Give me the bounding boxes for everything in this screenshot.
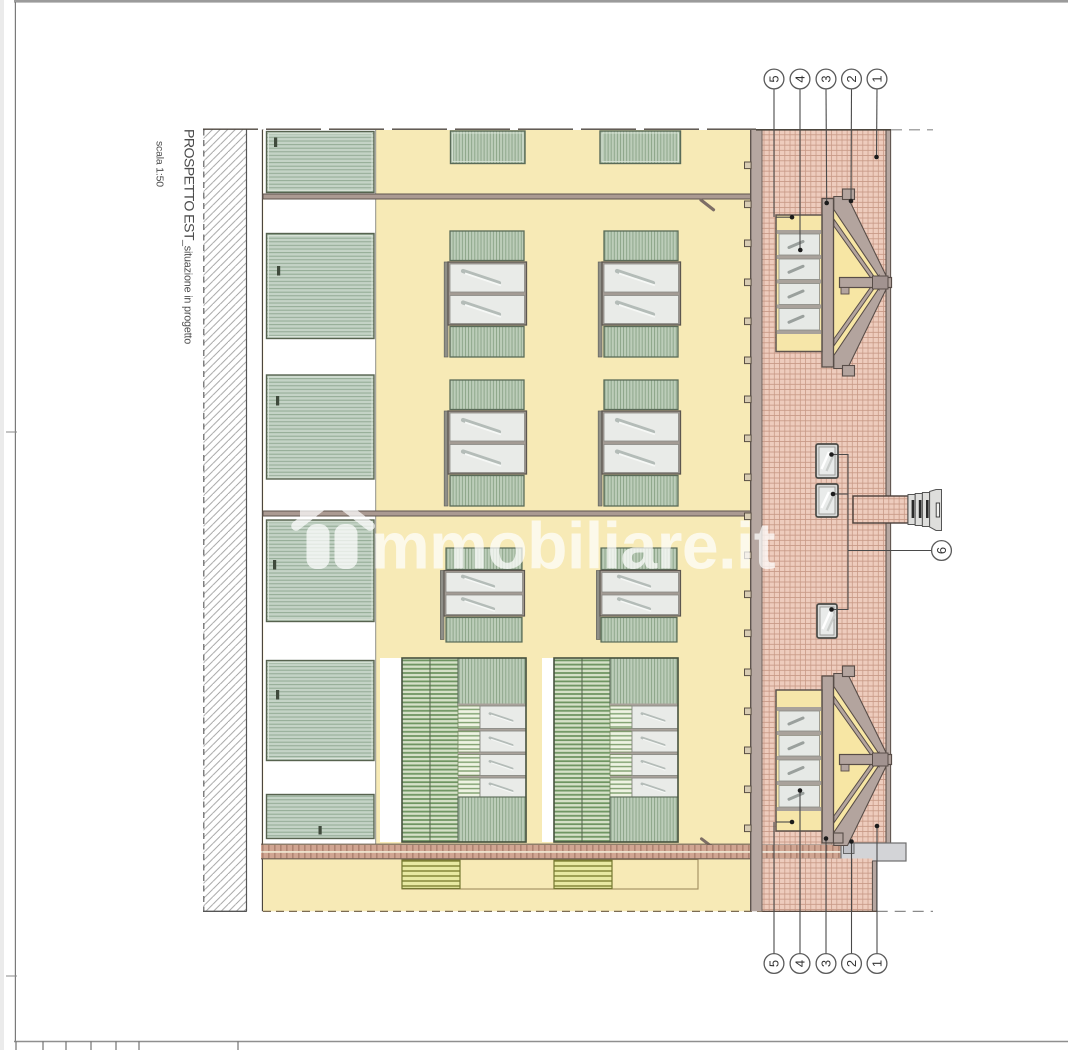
- svg-text:4: 4: [793, 75, 808, 82]
- svg-text:6: 6: [934, 547, 949, 554]
- svg-text:1: 1: [870, 75, 885, 82]
- svg-text:3: 3: [819, 75, 834, 82]
- svg-text:scala 1:50: scala 1:50: [154, 141, 166, 187]
- svg-text:1: 1: [870, 960, 885, 967]
- svg-text:2: 2: [844, 960, 859, 967]
- svg-text:5: 5: [767, 75, 782, 82]
- svg-text:mmobiliare.it: mmobiliare.it: [371, 509, 776, 583]
- svg-text:PROSPETTO EST_situazione in pr: PROSPETTO EST_situazione in progetto: [181, 129, 197, 344]
- svg-text:5: 5: [767, 960, 782, 967]
- svg-text:2: 2: [844, 75, 859, 82]
- svg-text:3: 3: [819, 960, 834, 967]
- svg-text:4: 4: [793, 960, 808, 967]
